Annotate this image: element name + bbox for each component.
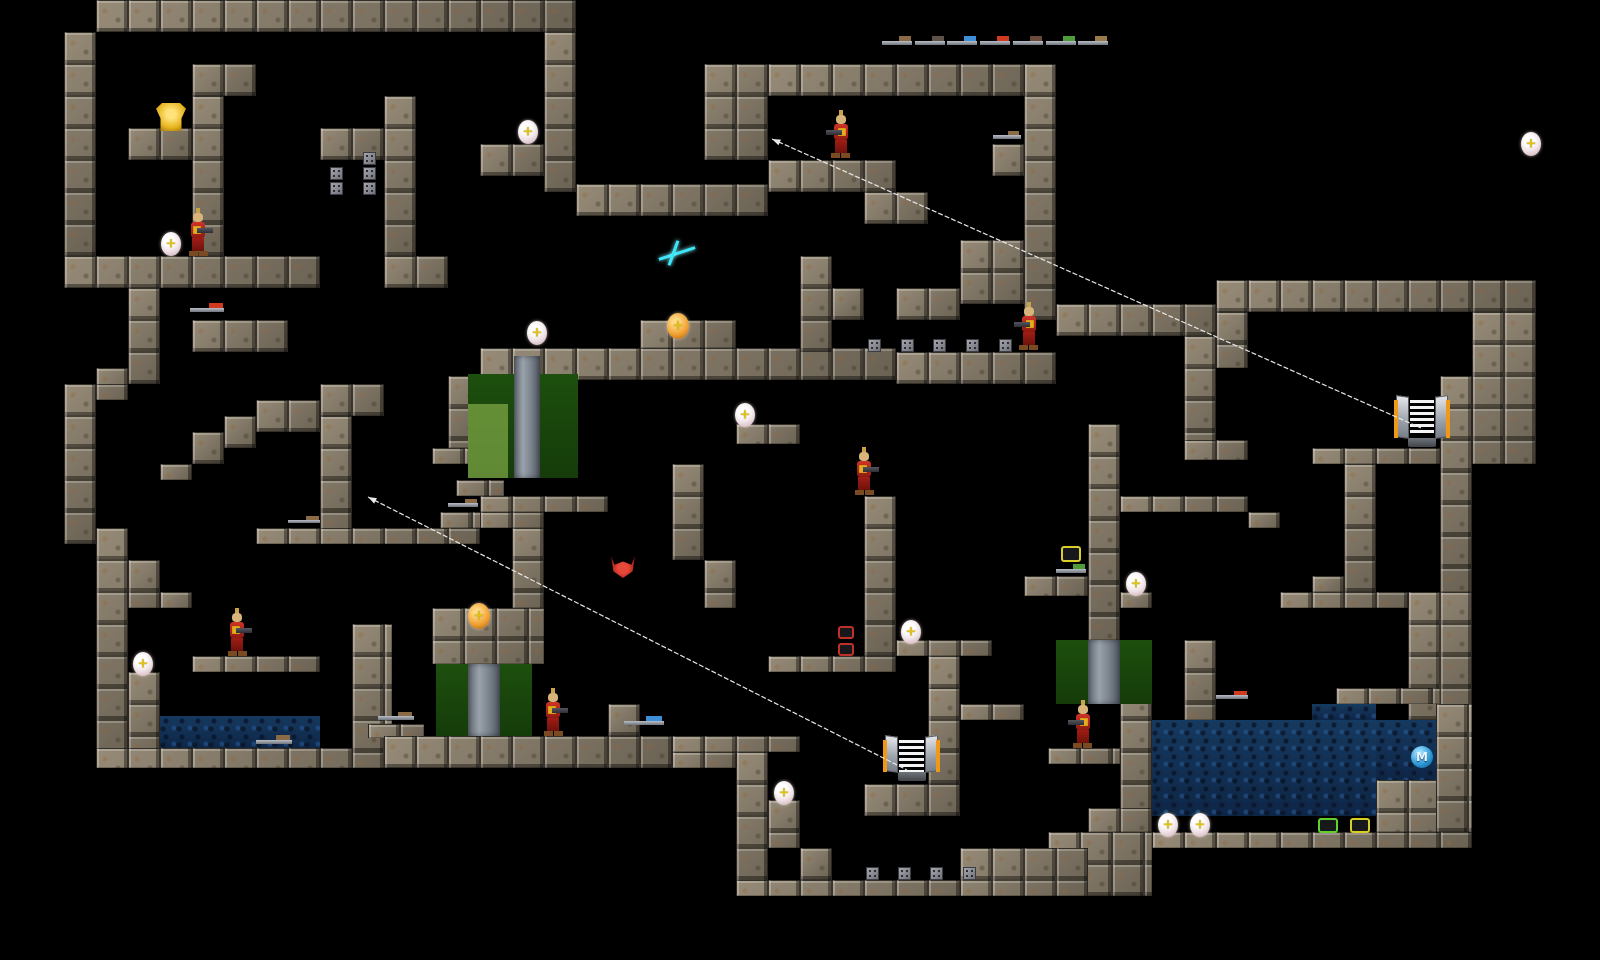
megahealth-item[interactable]: M [1411, 746, 1433, 768]
power-orb[interactable]: + [468, 603, 490, 629]
metal-block [363, 152, 376, 165]
red-creature[interactable] [611, 556, 635, 578]
ground-weapon[interactable] [190, 303, 224, 317]
stone-wall [672, 464, 704, 560]
teleporter-part [1446, 400, 1450, 438]
stone-wall [864, 192, 928, 224]
health-orb[interactable]: + [1158, 813, 1178, 837]
red-ring-item[interactable] [838, 626, 854, 639]
teleporter[interactable] [1394, 396, 1450, 444]
metal-block [930, 867, 943, 880]
soldier-legs [858, 477, 870, 490]
teleporter-part [898, 772, 926, 781]
stone-wall [768, 656, 896, 672]
stone-wall [960, 848, 1088, 896]
soldier-boot [228, 651, 237, 656]
soldier-boot [865, 490, 874, 495]
stone-wall [800, 256, 832, 352]
teleporter-part [1410, 406, 1434, 409]
soldier-gun [1068, 720, 1084, 725]
teleporter-part [883, 740, 887, 772]
door-column [514, 356, 540, 478]
rack-weapon-grenade-launcher[interactable] [1013, 36, 1043, 50]
stone-wall [96, 0, 576, 32]
soldier-legs [835, 140, 847, 153]
stone-wall [192, 432, 224, 464]
stone-wall [512, 528, 544, 608]
teleporter-part [1408, 438, 1436, 447]
metal-block [966, 339, 979, 352]
teleporter-part [1410, 418, 1434, 421]
stone-wall [704, 560, 736, 608]
stone-wall [736, 424, 800, 444]
stone-wall [192, 656, 320, 672]
soldier-boot [189, 251, 198, 256]
rack-weapon-super-nailgun[interactable] [980, 36, 1010, 50]
power-orb[interactable]: + [667, 313, 689, 339]
stone-wall [768, 800, 800, 848]
ground-weapon[interactable] [993, 131, 1021, 143]
stone-wall [1280, 592, 1408, 608]
stone-wall [896, 352, 1056, 384]
stone-wall [1056, 304, 1216, 336]
teleporter-part [899, 740, 924, 743]
stone-wall [64, 384, 96, 544]
health-orb[interactable]: + [518, 120, 538, 144]
stone-wall [960, 240, 1024, 304]
soldier-gun [552, 708, 568, 713]
stone-wall [480, 496, 608, 512]
stone-wall [1024, 576, 1088, 596]
stone-wall [1024, 64, 1056, 320]
stone-wall [160, 592, 192, 608]
soldier-head [836, 115, 846, 124]
teleporter-part [899, 746, 924, 749]
door-column [1088, 640, 1120, 704]
stone-wall [544, 32, 576, 192]
stone-wall [1248, 512, 1280, 528]
ground-weapon[interactable] [448, 499, 478, 511]
stone-wall [1120, 496, 1248, 512]
metal-block [866, 867, 879, 880]
stone-wall [1336, 688, 1440, 704]
stone-wall [1184, 640, 1216, 720]
enemy-soldier[interactable] [183, 208, 213, 256]
soldier-boot [841, 153, 850, 158]
soldier-boot [199, 251, 208, 256]
water-pool [160, 716, 320, 748]
stone-wall [224, 416, 256, 448]
enemy-soldier[interactable] [826, 110, 856, 160]
teleporter-part [899, 764, 924, 767]
door-column [468, 664, 500, 736]
stone-wall [1216, 312, 1248, 368]
soldier-legs [547, 718, 559, 731]
soldier-gun [236, 628, 252, 633]
soldier-legs [192, 238, 204, 251]
stone-wall [384, 736, 672, 768]
soldier-head [193, 213, 203, 222]
stone-wall [736, 752, 768, 896]
ground-weapon[interactable] [1216, 691, 1248, 703]
soldier-gun [197, 228, 213, 233]
soldier-boot [1019, 345, 1028, 350]
rack-weapon-nailgun[interactable] [947, 36, 977, 50]
stone-wall [672, 736, 800, 752]
soldier-boot [1029, 345, 1038, 350]
stone-wall [1088, 808, 1152, 832]
soldier-head [859, 452, 869, 461]
soldier-legs [231, 638, 243, 651]
enemy-soldier[interactable] [1068, 700, 1098, 750]
soldier-boot [1083, 743, 1092, 748]
soldier-gun [1014, 322, 1030, 327]
teleporter-part [899, 758, 924, 761]
water-pool [1152, 720, 1376, 816]
teleporter-part [1410, 430, 1434, 433]
water-pool [1312, 704, 1376, 720]
teleporter-part [1394, 400, 1398, 438]
health-orb[interactable]: + [527, 321, 547, 345]
rack-weapon-thunderbolt[interactable] [1078, 36, 1108, 50]
soldier-head [1078, 705, 1088, 714]
metal-block [999, 339, 1012, 352]
stone-wall [1048, 748, 1120, 764]
stone-wall [456, 480, 504, 496]
metal-block [963, 867, 976, 880]
stone-wall [1088, 424, 1120, 640]
enemy-soldier[interactable] [538, 688, 568, 736]
health-orb[interactable]: + [133, 652, 153, 676]
stone-wall [1472, 312, 1536, 464]
stone-wall [480, 512, 544, 528]
teleporter-part [936, 740, 940, 772]
soldier-boot [544, 731, 553, 736]
soldier-boot [855, 490, 864, 495]
stone-wall [128, 128, 192, 160]
stone-wall [64, 256, 320, 288]
red-ring-item[interactable] [838, 643, 854, 656]
stone-wall [768, 64, 1056, 96]
health-orb[interactable]: + [774, 781, 794, 805]
teleporter-part [1410, 424, 1434, 427]
health-orb[interactable]: + [161, 232, 181, 256]
stone-wall [864, 784, 960, 816]
ground-weapon[interactable] [256, 735, 292, 748]
health-orb[interactable]: + [1521, 132, 1541, 156]
stone-wall [256, 528, 480, 544]
soldier-head [232, 613, 242, 622]
stone-wall [320, 384, 384, 416]
teleporter-part [1410, 400, 1434, 403]
stone-wall [384, 256, 448, 288]
gold-armor-item[interactable] [156, 103, 186, 131]
stone-wall [96, 528, 128, 768]
stone-wall [1184, 336, 1216, 456]
ground-weapon[interactable] [378, 712, 414, 724]
rack-weapon-rocket-launcher[interactable] [1046, 36, 1076, 50]
metal-block [363, 167, 376, 180]
soldier-legs [1023, 332, 1035, 345]
teleporter-part [899, 752, 924, 755]
soldier-legs [1077, 730, 1089, 743]
metal-block [363, 182, 376, 195]
stone-wall [960, 704, 1024, 720]
stone-wall [1312, 576, 1344, 592]
stone-wall [64, 32, 96, 256]
stone-wall [384, 96, 416, 256]
metal-block [933, 339, 946, 352]
soldier-gun [826, 130, 842, 135]
stone-wall [128, 288, 160, 384]
stone-wall [1216, 280, 1536, 312]
soldier-boot [1073, 743, 1082, 748]
enemy-soldier[interactable] [1014, 302, 1044, 352]
soldier-gun [863, 467, 879, 472]
ground-weapon[interactable] [288, 516, 320, 527]
health-orb[interactable]: + [1126, 572, 1146, 596]
stone-wall [256, 400, 320, 432]
stone-wall [1344, 464, 1376, 592]
ammo-box[interactable] [1350, 818, 1370, 833]
stone-wall [320, 416, 352, 544]
stone-wall [160, 464, 192, 480]
health-orb[interactable]: + [735, 403, 755, 427]
yellow-armor-item[interactable] [1061, 546, 1081, 562]
stone-wall [480, 144, 544, 176]
health-orb[interactable]: + [901, 620, 921, 644]
teleporter-part [1410, 412, 1434, 415]
stone-wall [832, 288, 864, 320]
metal-block [898, 867, 911, 880]
stone-wall [192, 320, 288, 352]
spark-effect [658, 240, 696, 266]
stone-wall [768, 160, 896, 192]
ammo-box[interactable] [1318, 818, 1338, 833]
stone-wall [864, 496, 896, 656]
rack-weapon-shotgun[interactable] [882, 36, 912, 50]
ground-weapon[interactable] [1056, 564, 1086, 577]
soldier-head [1024, 307, 1034, 316]
soldier-boot [554, 731, 563, 736]
teleporter[interactable] [883, 736, 940, 778]
soldier-boot [831, 153, 840, 158]
stone-wall [800, 848, 832, 880]
stone-wall [192, 64, 256, 96]
metal-block [330, 167, 343, 180]
rack-weapon-super-shotgun[interactable] [915, 36, 945, 50]
metal-block [868, 339, 881, 352]
stone-wall [896, 288, 960, 320]
enemy-soldier[interactable] [222, 608, 252, 657]
stone-wall [128, 560, 160, 608]
ground-weapon[interactable] [624, 716, 664, 730]
level-map-canvas: +++++++++++++M [0, 0, 1600, 960]
stone-wall [672, 752, 736, 768]
stone-wall [1184, 440, 1248, 460]
enemy-soldier[interactable] [849, 447, 879, 496]
health-orb[interactable]: + [1190, 813, 1210, 837]
door-trigger-block[interactable] [468, 441, 508, 478]
soldier-head [548, 693, 558, 702]
soldier-boot [238, 651, 247, 656]
stone-wall [1436, 704, 1472, 832]
metal-block [901, 339, 914, 352]
metal-block [330, 182, 343, 195]
stone-wall [576, 184, 768, 216]
stone-wall [704, 64, 768, 160]
door-trigger-block[interactable] [468, 404, 508, 441]
